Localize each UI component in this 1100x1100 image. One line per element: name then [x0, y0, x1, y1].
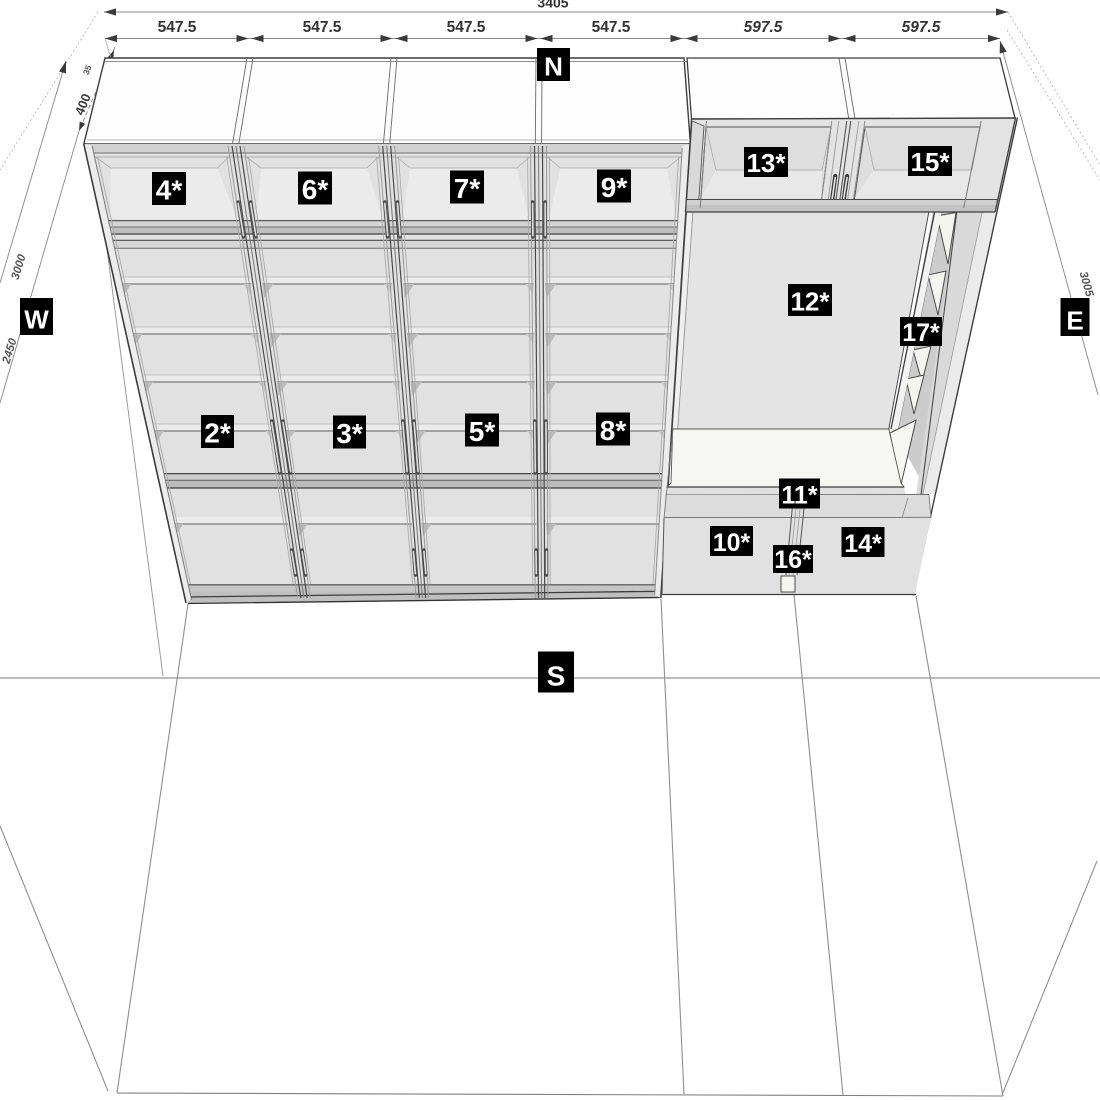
svg-text:547.5: 547.5	[303, 19, 342, 36]
svg-text:547.5: 547.5	[592, 19, 631, 36]
svg-text:11*: 11*	[781, 481, 817, 509]
svg-text:9*: 9*	[601, 172, 628, 203]
svg-text:14*: 14*	[844, 530, 882, 558]
svg-text:597.5: 597.5	[744, 19, 783, 36]
svg-text:597.5: 597.5	[902, 19, 941, 36]
svg-text:547.5: 547.5	[447, 19, 486, 36]
svg-text:S: S	[547, 661, 566, 692]
svg-text:16*: 16*	[774, 546, 812, 574]
svg-text:12*: 12*	[790, 287, 830, 317]
svg-text:547.5: 547.5	[158, 19, 197, 36]
svg-text:6*: 6*	[302, 174, 329, 205]
svg-text:15*: 15*	[910, 147, 950, 177]
svg-text:17*: 17*	[902, 319, 940, 347]
svg-text:7*: 7*	[454, 173, 481, 204]
svg-text:3*: 3*	[336, 418, 363, 449]
svg-text:4*: 4*	[156, 174, 183, 205]
svg-text:8*: 8*	[600, 415, 627, 446]
svg-text:2*: 2*	[204, 417, 231, 448]
svg-text:5*: 5*	[469, 416, 496, 447]
svg-text:13*: 13*	[746, 148, 786, 178]
svg-text:E: E	[1066, 306, 1083, 336]
svg-text:10*: 10*	[713, 529, 751, 557]
svg-text:N: N	[544, 51, 563, 81]
svg-text:W: W	[24, 305, 49, 335]
svg-text:3405: 3405	[537, 0, 568, 11]
